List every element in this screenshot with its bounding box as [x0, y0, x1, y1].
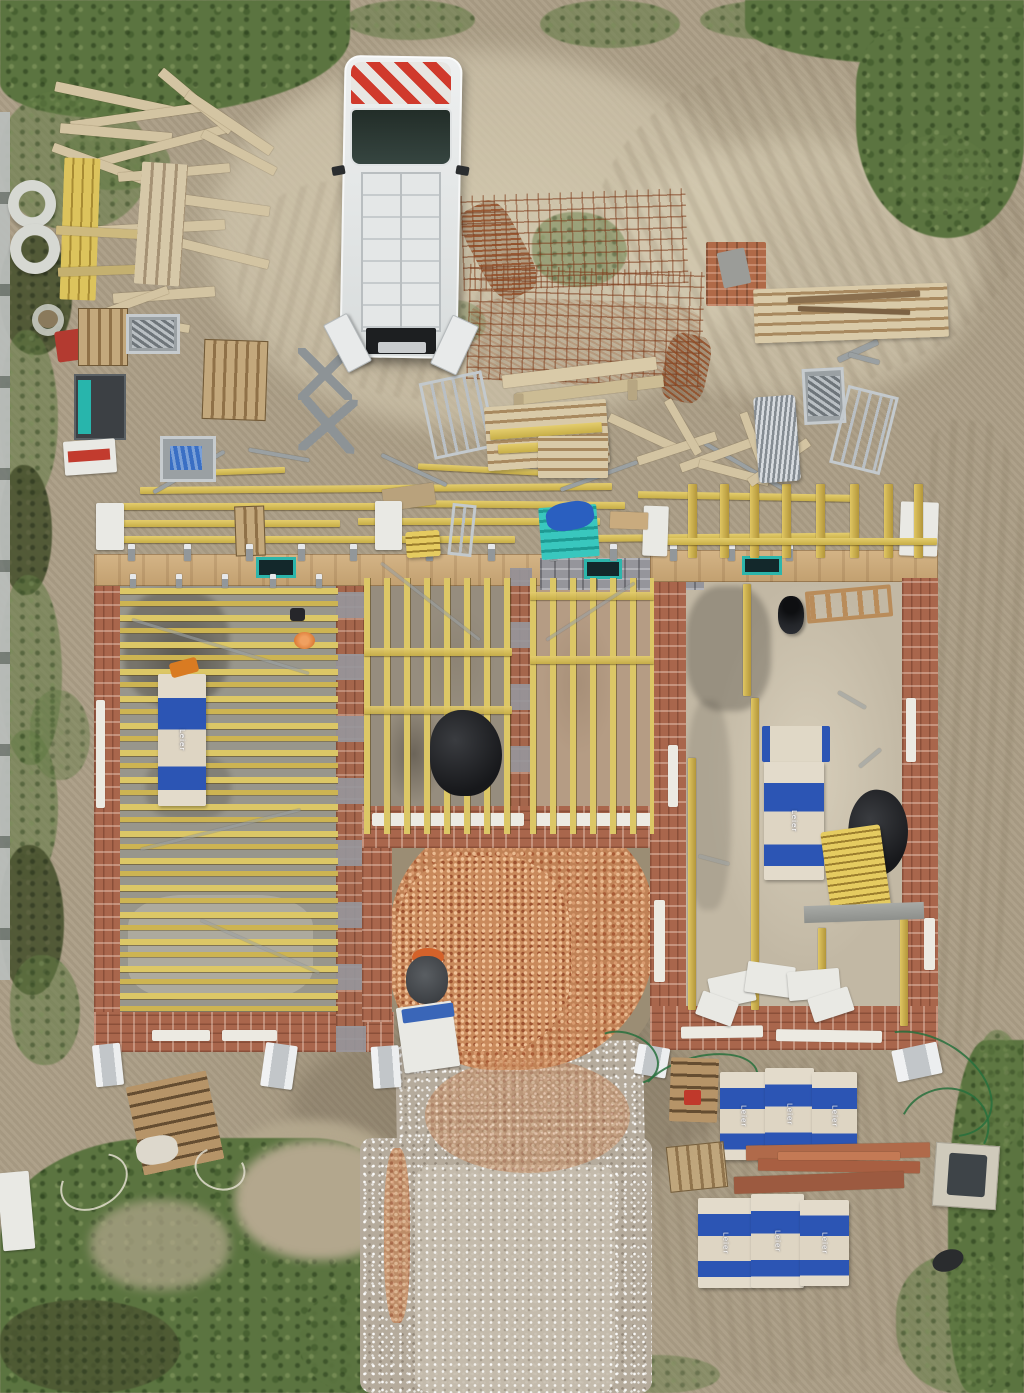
brick-pack-slab: Leier [764, 762, 824, 880]
noggin-row-2 [364, 706, 512, 714]
wall-post-2 [720, 484, 729, 558]
inner-jack-4 [270, 574, 276, 588]
brick-pack-slab-top [762, 726, 830, 762]
noggin-row-1 [364, 648, 512, 656]
screw-jack-3 [246, 544, 253, 561]
barrel-body [406, 956, 448, 1004]
basket-couplers [132, 320, 174, 348]
rw-east-lintel-1 [924, 918, 935, 970]
screw-jack-1 [128, 544, 135, 561]
pot-contents [38, 310, 58, 328]
wall-post-1 [688, 484, 697, 558]
grass-left-4 [10, 955, 80, 1065]
steel-ibeam-3 [371, 1045, 402, 1089]
concrete-ring-1 [8, 180, 56, 228]
slab-post-4 [900, 906, 908, 1026]
window-slot-3 [742, 556, 782, 575]
construction-site-aerial-photo: LeierLeierLeierLeierLeierLeierLeierLeier [0, 0, 1024, 1393]
wooden-crate-stack [78, 308, 128, 366]
van-cargo-roof [361, 172, 441, 332]
slab-post-2 [743, 584, 751, 696]
bench-leg-2 [628, 380, 637, 400]
tub-blue-tools [170, 446, 202, 470]
screw-jack-2 [184, 544, 191, 561]
wall-post-6 [850, 484, 859, 558]
inner-jack-1 [130, 574, 136, 588]
screw-jack-11 [728, 544, 735, 561]
rw-south-lintel-2 [776, 1029, 882, 1043]
grass-tuft-top-1 [345, 0, 475, 40]
utility-pad-cover [947, 1153, 988, 1198]
grass-top-right-3 [893, 135, 993, 215]
center-right-joists [530, 578, 654, 834]
wall-post-8 [914, 484, 923, 558]
brick-pack-b2: Leier [751, 1194, 804, 1288]
small-wood-frame [666, 1141, 728, 1193]
screw-jack-10 [670, 544, 677, 561]
scrub-bottom-left [0, 1300, 180, 1393]
rw-west-lintel-2 [668, 745, 678, 807]
concrete-fence [0, 112, 10, 980]
wall-post-7 [884, 484, 893, 558]
wood-panel [202, 339, 269, 421]
dirt-in-grass-2 [90, 1200, 230, 1290]
wood-block [610, 511, 649, 529]
van-chevron-roof [351, 62, 451, 104]
van-bumper-step [378, 342, 426, 353]
steel-ibeam-2 [260, 1042, 298, 1090]
insulation-pack-left-wing: Leier [158, 674, 206, 806]
inner-jack-5 [316, 574, 322, 588]
staging-whitebox-1 [96, 503, 124, 550]
folding-trestle-2 [298, 396, 358, 454]
screw-jack-7 [488, 544, 495, 561]
formwork-sheets [538, 436, 608, 478]
inner-jack-2 [176, 574, 182, 588]
staging-whitebox-2 [375, 501, 402, 550]
rw-south-lintel-1 [681, 1025, 763, 1038]
black-toolbag [290, 608, 305, 621]
noggin-row-4 [530, 592, 654, 600]
right-wall-rail [653, 538, 937, 545]
cable-reel [294, 632, 315, 649]
noggin-row-3 [530, 656, 654, 664]
grass-left-5 [30, 690, 90, 780]
staging-rail-1 [140, 483, 612, 494]
south-wall-lintel-2 [222, 1030, 277, 1041]
slab-wet-patch [686, 586, 771, 711]
screw-jack-5 [350, 544, 357, 561]
wall-post-5 [816, 484, 825, 558]
brick-rubble-edge [384, 1148, 410, 1323]
scaffold-pole-bundle [753, 395, 801, 484]
steel-ibeam-1 [92, 1043, 124, 1088]
west-wall-lintel [96, 700, 105, 808]
alu-ramp [447, 503, 476, 557]
window-slot-1 [256, 557, 296, 578]
fittings-jumble [808, 376, 840, 416]
opening-west-wall [362, 832, 392, 1022]
red-item-on-rack [684, 1090, 701, 1105]
window-slot-2 [584, 559, 622, 579]
grass-tuft-top-2 [540, 0, 680, 48]
red-plank-4 [778, 1152, 900, 1160]
brick-pack-b1: Leier [698, 1198, 753, 1288]
brick-pack-b3: Leier [800, 1200, 849, 1286]
black-tarp-center-room [430, 710, 502, 796]
screw-jack-9 [610, 544, 617, 561]
white-beam-bundle [134, 162, 188, 287]
left-wing-joists [120, 588, 338, 1016]
brick-rubble-tail [425, 1058, 630, 1173]
wall-post-4 [782, 484, 791, 558]
rw-west-lintel-1 [654, 900, 665, 982]
gravel-bright-core [415, 1165, 615, 1393]
inner-jack-3 [222, 574, 228, 588]
worker-person [778, 596, 804, 634]
teal-strip-in-crate [78, 380, 91, 434]
rw-east-lintel-2 [906, 698, 916, 762]
slab-post-1 [688, 758, 696, 1010]
screw-jack-4 [298, 544, 305, 561]
wall-post-3 [750, 484, 759, 558]
south-wall-lintel-1 [152, 1030, 210, 1041]
van-windshield [352, 110, 450, 164]
grass-right-2 [896, 1255, 1024, 1393]
yellow-block-stack [405, 530, 441, 558]
center-pier [510, 568, 532, 834]
staging-rail-5 [98, 520, 340, 527]
